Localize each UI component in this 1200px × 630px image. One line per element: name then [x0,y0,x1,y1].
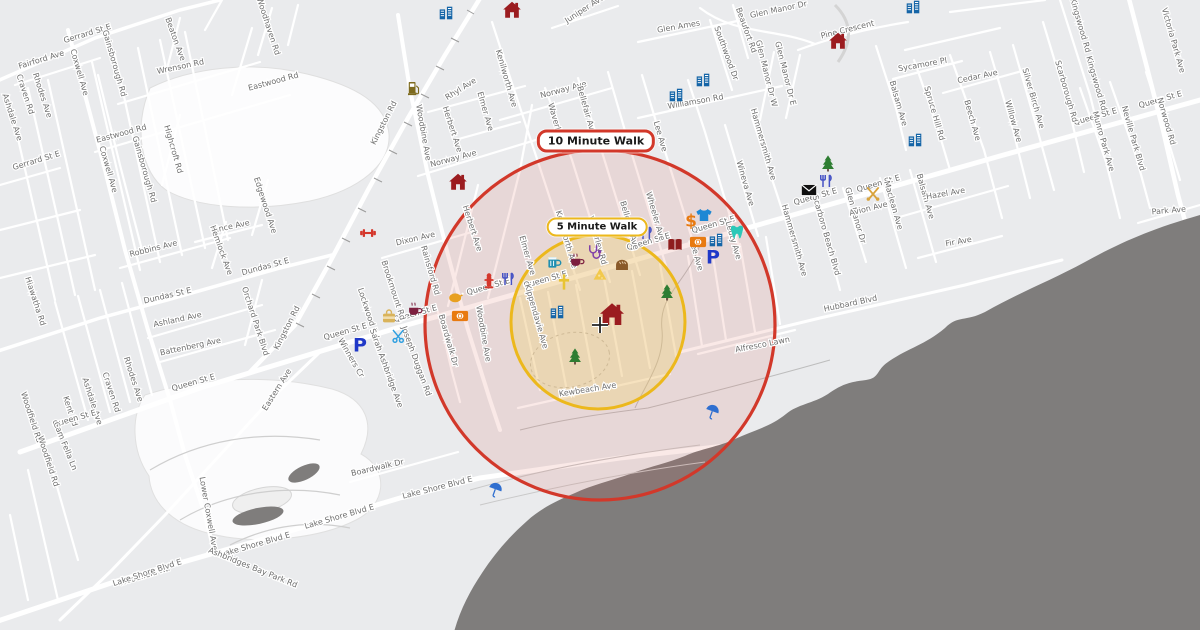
book-marker-icon[interactable] [667,238,684,253]
coffee-marker-icon[interactable] [407,301,424,317]
bag-marker-icon[interactable] [381,309,397,324]
five-minute-walk-text: 5 Minute Walk [557,222,638,233]
fuel-marker-icon[interactable] [407,80,422,97]
ten-minute-walk-label: 10 Minute Walk [537,130,655,153]
house-marker-icon[interactable] [447,171,469,193]
tree-marker-icon[interactable] [567,348,584,365]
money-marker-icon[interactable] [452,310,469,323]
stethoscope-marker-icon[interactable] [586,244,603,261]
tree-marker-icon[interactable] [659,284,676,301]
cross-marker-icon[interactable] [557,274,571,291]
umbrella-marker-icon[interactable] [487,482,503,498]
tree-marker-icon[interactable] [820,155,837,172]
walkability-map[interactable]: Gerrard St EFairford AveGerrard St ECoxw… [0,0,1200,630]
envelope-marker-icon[interactable] [801,184,818,197]
five-minute-walk-label: 5 Minute Walk [547,218,648,237]
school-marker-icon[interactable] [694,71,712,89]
home-marker[interactable] [597,300,627,330]
parking-marker-icon[interactable]: P [353,337,367,356]
school-marker-icon[interactable] [904,0,922,16]
house-marker-icon[interactable] [501,0,523,21]
umbrella-marker-icon[interactable] [704,404,720,420]
beer-marker-icon[interactable] [546,254,562,270]
ten-minute-walk-text: 10 Minute Walk [548,135,644,148]
cheese-marker-icon[interactable] [592,267,608,282]
bread-marker-icon[interactable] [614,257,631,271]
money-marker-icon[interactable] [690,236,707,249]
coffee-marker-icon[interactable] [569,252,586,268]
school-marker-icon[interactable] [437,4,455,22]
tshirt-marker-icon[interactable] [696,207,713,224]
school-marker-icon[interactable] [548,303,566,321]
school-marker-icon[interactable] [906,131,924,149]
utensils-marker-icon[interactable] [819,173,834,189]
house-marker-icon[interactable] [827,30,849,52]
school-marker-icon[interactable] [667,86,685,104]
parking-marker-icon[interactable]: P [706,249,720,268]
hydrant-marker-icon[interactable] [482,273,496,290]
golf-marker-icon[interactable] [865,186,882,203]
utensils-marker-icon[interactable] [501,271,516,287]
tooth-marker-icon[interactable] [729,224,745,240]
scissors-marker-icon[interactable] [391,328,407,344]
chicken-marker-icon[interactable] [448,290,465,304]
dumbbell-marker-icon[interactable] [359,226,377,240]
